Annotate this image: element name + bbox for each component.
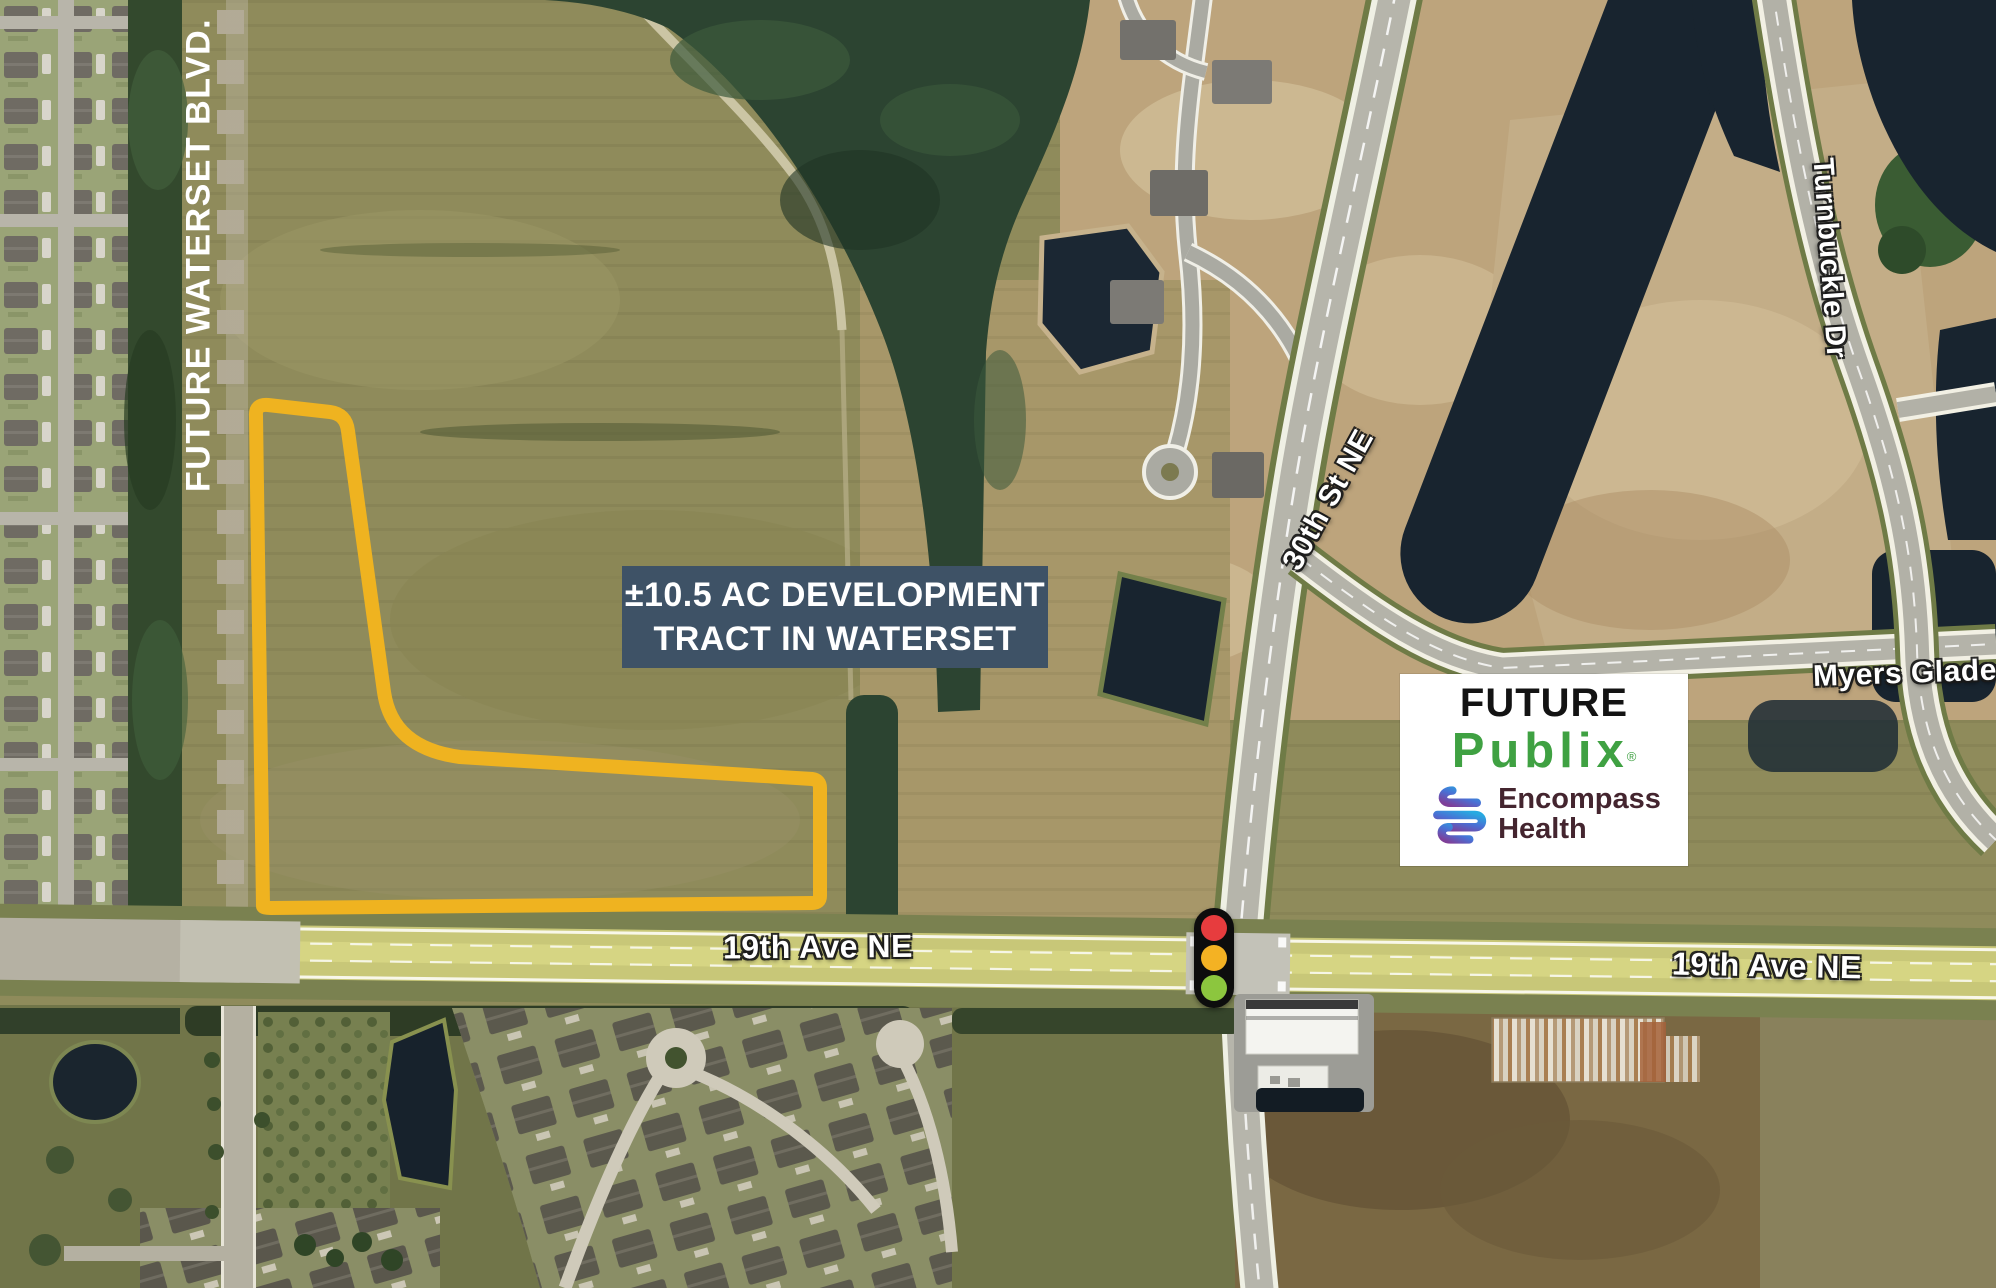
traffic-light-amber (1201, 945, 1227, 971)
publix-registered-mark: ® (1627, 749, 1637, 764)
tract-label-line1: ±10.5 AC DEVELOPMENT (625, 573, 1045, 617)
aerial-site-map: FUTURE WATERSET BLVD. 30th St NE Turnbuc… (0, 0, 1996, 1288)
publix-wordmark: Publix (1452, 724, 1629, 778)
publix-logo: Publix® (1452, 727, 1637, 776)
traffic-light-red (1201, 915, 1227, 941)
traffic-light-green (1201, 975, 1227, 1001)
encompass-health-logo: Encompass Health (1427, 784, 1661, 846)
tract-label-line2: TRACT IN WATERSET (654, 617, 1017, 661)
encompass-line2: Health (1498, 815, 1661, 845)
tract-label-box: ±10.5 AC DEVELOPMENT TRACT IN WATERSET (622, 566, 1048, 668)
encompass-health-wordmark: Encompass Health (1498, 785, 1661, 844)
encompass-health-icon (1427, 784, 1489, 846)
future-tenants-card: FUTURE Publix® (1400, 674, 1688, 866)
encompass-line1: Encompass (1498, 785, 1661, 815)
future-heading: FUTURE (1460, 683, 1628, 723)
traffic-light-icon (1194, 908, 1234, 1008)
